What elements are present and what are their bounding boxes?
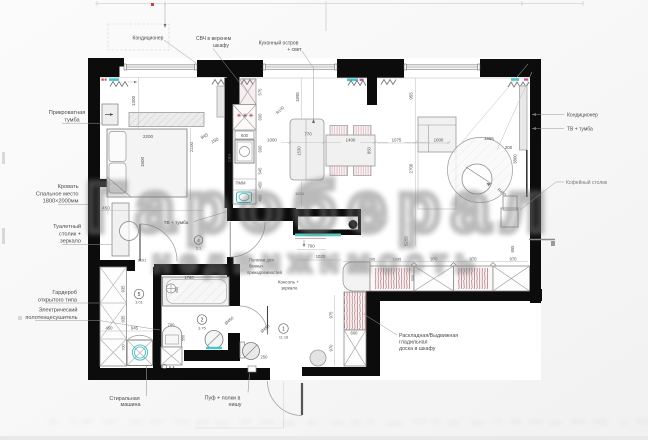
svg-text:600: 600 [241, 133, 249, 138]
svg-text:зеркало: зеркало [281, 286, 298, 291]
svg-text:600: 600 [351, 331, 359, 336]
svg-text:3.75: 3.75 [198, 327, 205, 331]
svg-text:955: 955 [409, 92, 414, 100]
svg-text:открытого типа: открытого типа [38, 297, 78, 303]
svg-text:Гардероб: Гардероб [52, 290, 77, 296]
svg-text:1: 1 [282, 327, 285, 333]
svg-text:450: 450 [175, 287, 179, 293]
svg-text:700: 700 [122, 344, 126, 350]
svg-text:1300: 1300 [131, 95, 136, 106]
svg-text:Кухонный остров: Кухонный остров [259, 40, 299, 47]
svg-text:11.18: 11.18 [279, 336, 288, 340]
svg-text:1075: 1075 [392, 138, 402, 143]
svg-text:1000: 1000 [267, 138, 277, 143]
svg-text:2191: 2191 [138, 259, 146, 263]
svg-text:Гароберал: Гароберал [86, 168, 557, 246]
svg-text:+ свет: + свет [287, 47, 302, 53]
svg-text:тумба: тумба [64, 118, 80, 124]
svg-text:970: 970 [329, 344, 334, 352]
svg-text:2100: 2100 [189, 141, 194, 152]
svg-text:935: 935 [121, 315, 126, 323]
svg-text:1530: 1530 [297, 146, 302, 156]
svg-text:Туалетный: Туалетный [53, 223, 81, 230]
svg-text:Электрический: Электрический [38, 307, 77, 314]
svg-text:1655: 1655 [484, 136, 494, 141]
svg-text:1800: 1800 [140, 156, 145, 167]
svg-text:Кровать: Кровать [58, 184, 79, 190]
svg-text:столик +: столик + [59, 231, 81, 237]
svg-text:3800: 3800 [513, 154, 518, 164]
svg-text:зеркало: зеркало [60, 239, 81, 245]
svg-text:250: 250 [261, 355, 269, 360]
svg-text:770: 770 [304, 132, 312, 137]
svg-text:нишу: нишу [228, 402, 241, 408]
svg-text:5: 5 [138, 292, 141, 298]
svg-text:700: 700 [168, 323, 176, 328]
svg-text:Пуф + полки в: Пуф + полки в [205, 396, 241, 402]
svg-text:недвижимость: недвижимость [152, 243, 483, 279]
svg-text:1000: 1000 [434, 138, 444, 143]
svg-text:шкафу: шкафу [213, 43, 229, 49]
svg-text:1400: 1400 [346, 138, 356, 143]
svg-text:✳: ✳ [242, 113, 247, 120]
svg-text:Спальное место: Спальное место [36, 191, 79, 197]
svg-text:850: 850 [367, 146, 372, 154]
svg-text:Раскладная/Выдвижная: Раскладная/Выдвижная [399, 333, 458, 339]
svg-text:2200: 2200 [143, 134, 154, 139]
svg-text:600: 600 [258, 145, 263, 153]
svg-text:доска в шкафу: доска в шкафу [399, 346, 436, 352]
svg-text:935: 935 [121, 285, 126, 293]
svg-text:СВЧ в верхнем: СВЧ в верхнем [196, 36, 232, 42]
svg-text:СВЧ: СВЧ [227, 154, 232, 163]
svg-text:200: 200 [505, 145, 513, 150]
svg-text:полотенцесушитель: полотенцесушитель [25, 315, 77, 321]
svg-text:550: 550 [182, 335, 186, 341]
svg-text:Консоль +: Консоль + [278, 280, 299, 285]
svg-text:машина: машина [120, 402, 140, 408]
svg-text:575: 575 [258, 88, 263, 96]
svg-text:600: 600 [258, 113, 263, 121]
svg-text:✳: ✳ [236, 113, 241, 120]
svg-text:970: 970 [510, 256, 518, 261]
svg-text:гладильная: гладильная [399, 340, 428, 346]
svg-text:1800×2000мм: 1800×2000мм [43, 199, 79, 205]
svg-text:Кондиционер: Кондиционер [133, 36, 164, 42]
svg-text:✳: ✳ [248, 113, 253, 120]
svg-text:2: 2 [201, 318, 204, 324]
svg-text:450: 450 [106, 326, 114, 331]
svg-text:975: 975 [329, 311, 334, 319]
svg-text:1895: 1895 [295, 92, 300, 102]
svg-text:Прикроватная: Прикроватная [49, 110, 86, 116]
svg-text:ТВ + тумба: ТВ + тумба [567, 127, 593, 133]
svg-text:3.01: 3.01 [135, 301, 142, 305]
svg-text:Кофейный столик: Кофейный столик [566, 179, 608, 186]
svg-text:Кондиционер: Кондиционер [567, 113, 598, 119]
